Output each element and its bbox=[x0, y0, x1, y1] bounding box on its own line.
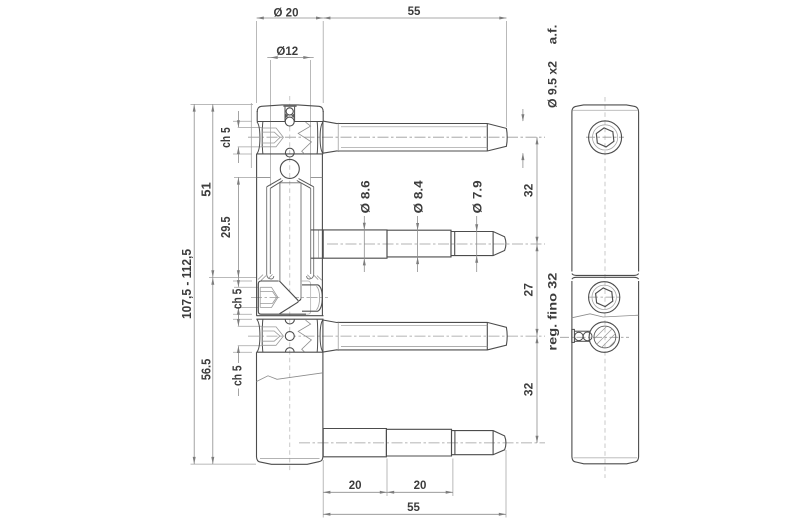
svg-text:Ø 8.6: Ø 8.6 bbox=[358, 180, 372, 213]
svg-text:29.5: 29.5 bbox=[218, 216, 233, 238]
svg-text:27: 27 bbox=[522, 283, 536, 297]
svg-text:ch 5: ch 5 bbox=[229, 289, 244, 310]
svg-text:Ø 9.5 x2: Ø 9.5 x2 bbox=[546, 61, 560, 108]
svg-text:20: 20 bbox=[349, 480, 362, 492]
svg-text:20: 20 bbox=[414, 480, 427, 492]
svg-text:Ø12: Ø12 bbox=[276, 46, 298, 58]
svg-text:ch 5: ch 5 bbox=[229, 365, 244, 386]
svg-text:Ø 8.4: Ø 8.4 bbox=[412, 180, 426, 213]
svg-text:51: 51 bbox=[198, 182, 213, 196]
svg-text:55: 55 bbox=[407, 502, 420, 514]
svg-text:Ø 20: Ø 20 bbox=[274, 7, 299, 19]
svg-text:Ø 7.9: Ø 7.9 bbox=[471, 180, 485, 213]
svg-text:ch 5: ch 5 bbox=[218, 127, 233, 148]
svg-text:55: 55 bbox=[408, 6, 421, 18]
svg-text:32: 32 bbox=[522, 382, 536, 396]
svg-text:reg. fino 32: reg. fino 32 bbox=[546, 272, 560, 350]
svg-text:107,5 - 112,5: 107,5 - 112,5 bbox=[180, 249, 194, 319]
svg-text:56.5: 56.5 bbox=[198, 359, 213, 381]
svg-text:a.f.: a.f. bbox=[546, 25, 560, 45]
svg-text:32: 32 bbox=[522, 183, 536, 197]
